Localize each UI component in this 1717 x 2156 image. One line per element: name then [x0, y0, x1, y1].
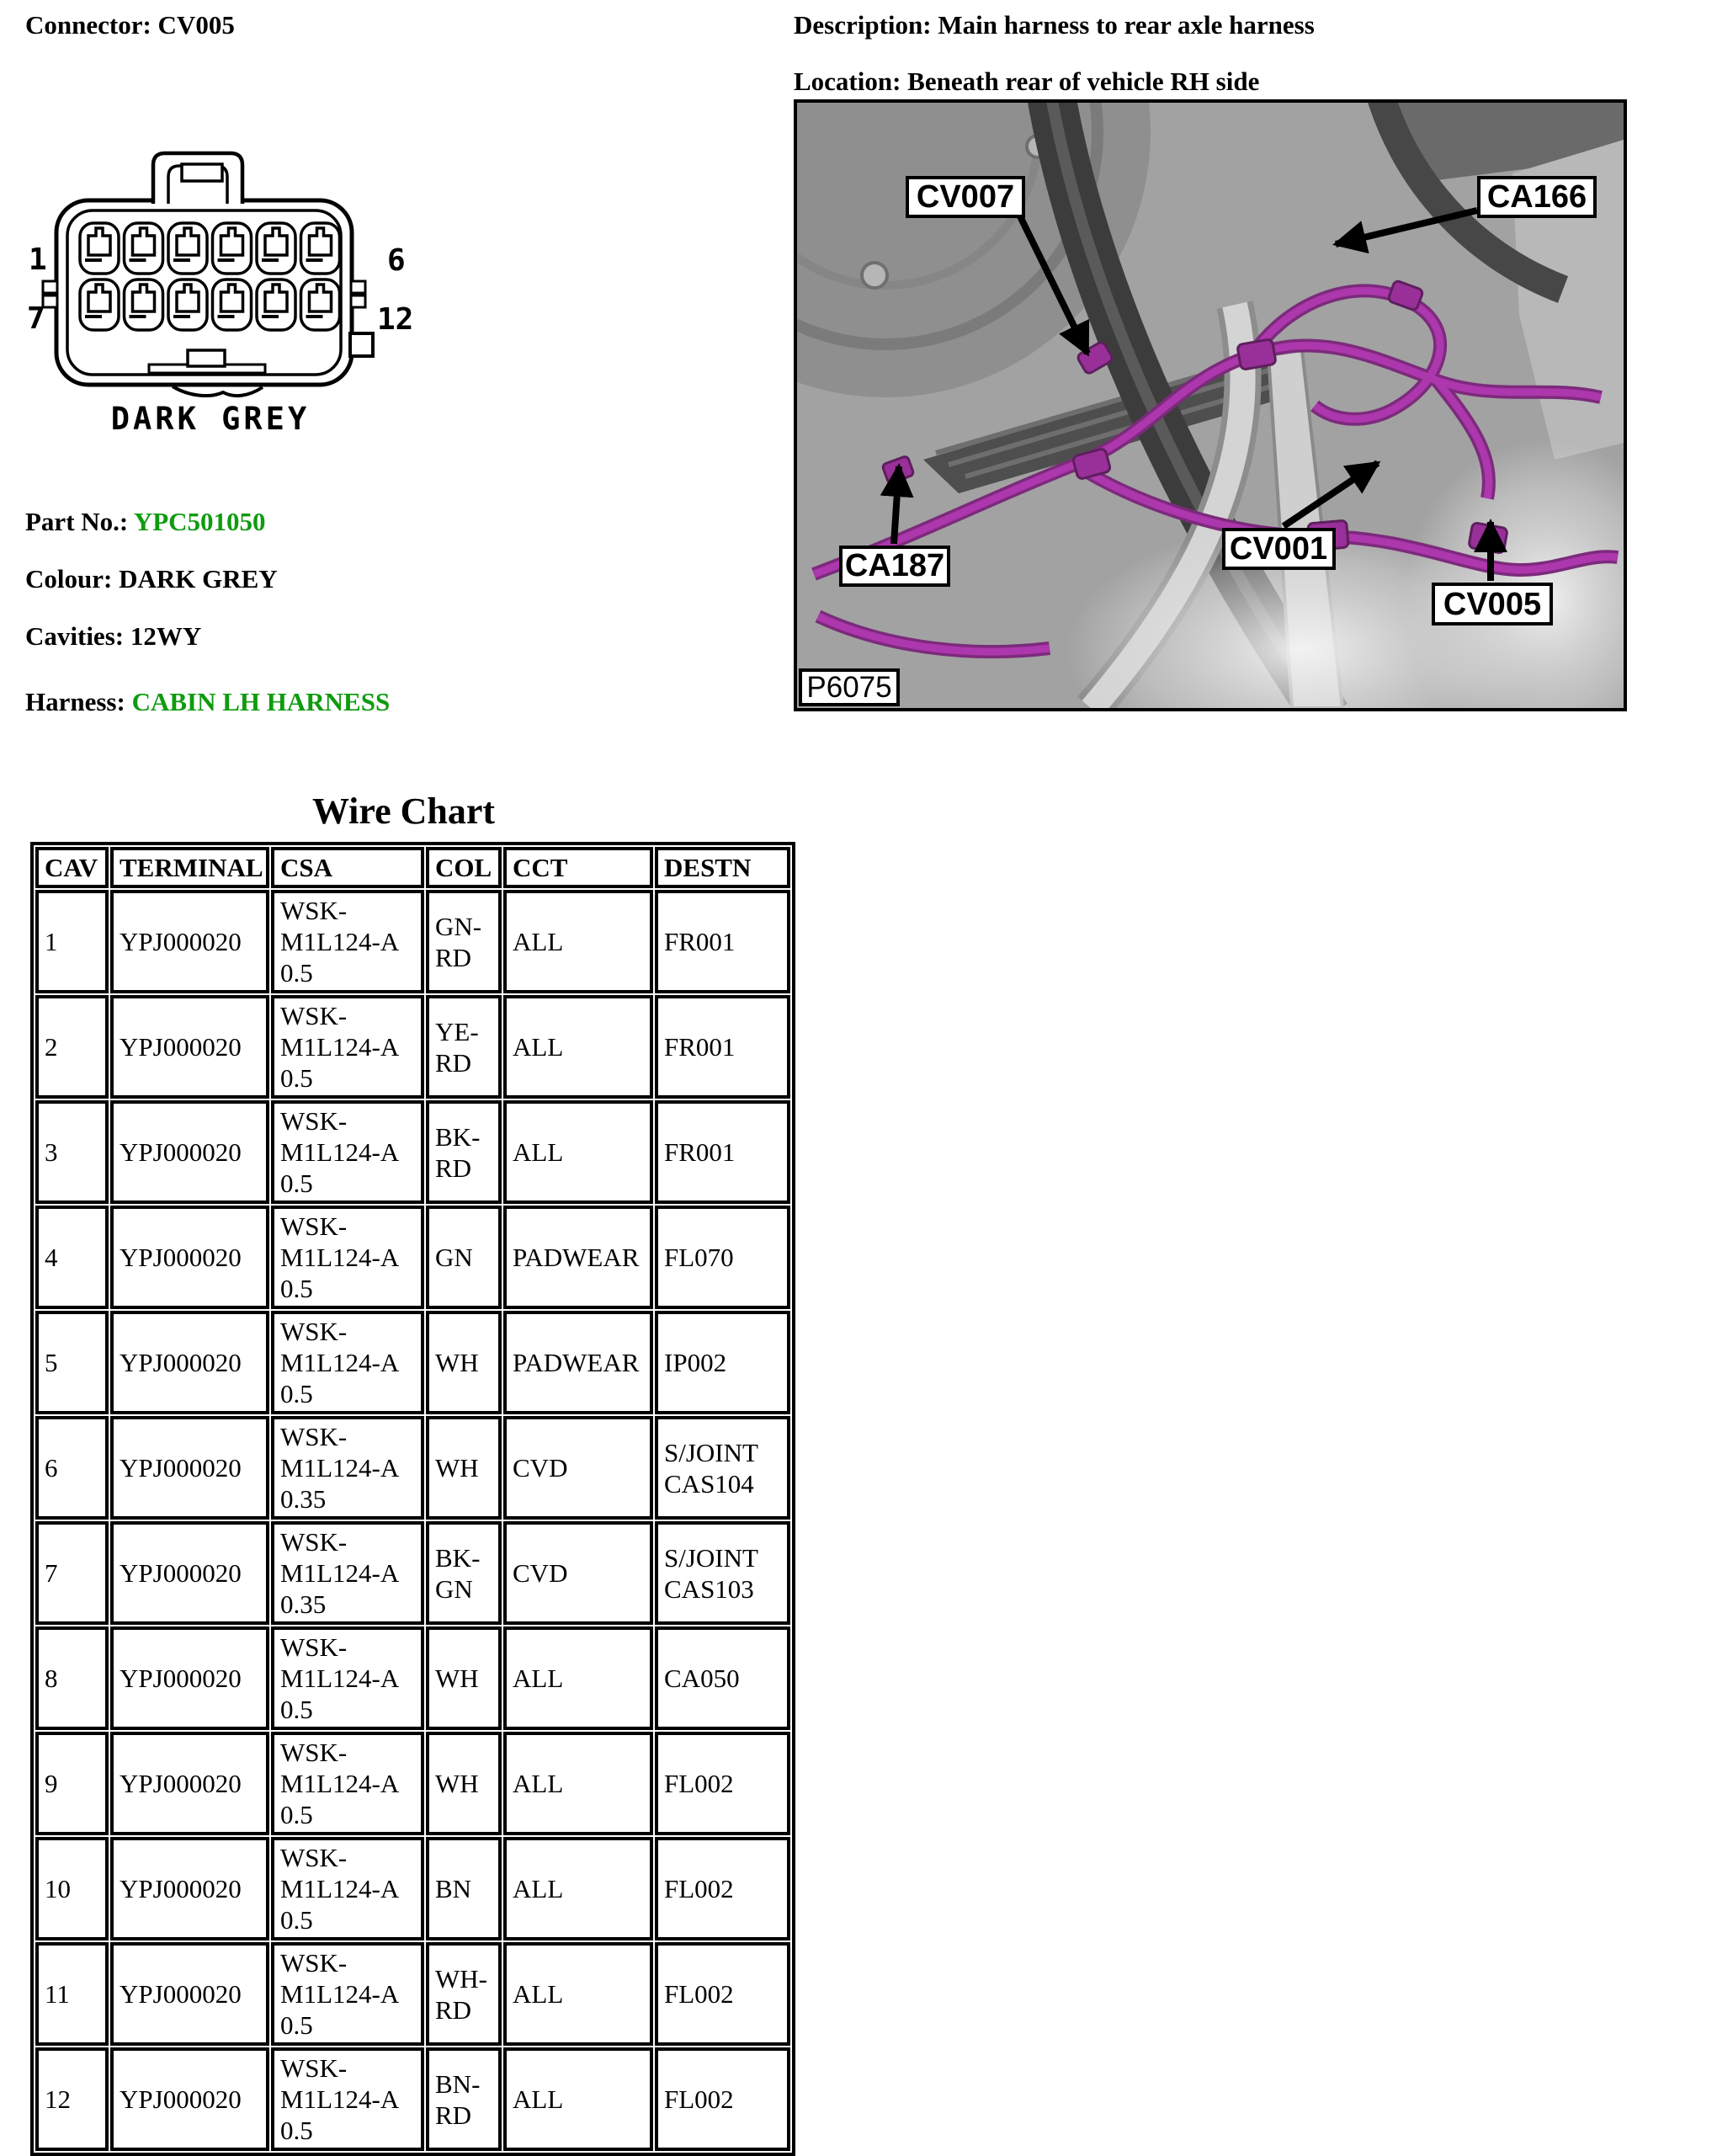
callout-label-cv001: CV001 [1230, 531, 1327, 567]
cell-csa: WSK- M1L124-A 0.5 [271, 890, 424, 993]
cell-cav: 2 [35, 995, 109, 1099]
cell-cav: 5 [35, 1311, 109, 1414]
table-row: 12 YPJ000020 WSK- M1L124-A 0.5 BN- RD AL… [35, 2047, 790, 2151]
cell-cct: ALL [503, 1100, 653, 1204]
table-row: 5 YPJ000020 WSK- M1L124-A 0.5 WH PADWEAR… [35, 1311, 790, 1414]
cell-csa: WSK- M1L124-A 0.5 [271, 1732, 424, 1835]
cell-cct: ALL [503, 1942, 653, 2046]
cell-cct: CVD [503, 1521, 653, 1625]
cell-col: BK- GN [426, 1521, 502, 1625]
table-row: 6 YPJ000020 WSK- M1L124-A 0.35 WH CVD S/… [35, 1416, 790, 1520]
cell-terminal: YPJ000020 [110, 1626, 269, 1730]
cell-destn: CA050 [655, 1626, 790, 1730]
cell-destn: FL002 [655, 1837, 790, 1940]
cell-csa: WSK- M1L124-A 0.35 [271, 1521, 424, 1625]
cell-col: WH [426, 1626, 502, 1730]
cell-destn: FL002 [655, 2047, 790, 2151]
connector-colour-caption: DARK GREY [111, 401, 310, 437]
cell-csa: WSK- M1L124-A 0.5 [271, 1626, 424, 1730]
cell-cav: 9 [35, 1732, 109, 1835]
colour-value: DARK GREY [119, 564, 278, 594]
cell-terminal: YPJ000020 [110, 1732, 269, 1835]
col-header-terminal: TERMINAL [110, 847, 269, 888]
callout-label-cv005: CV005 [1443, 587, 1541, 622]
table-row: 11 YPJ000020 WSK- M1L124-A 0.5 WH- RD AL… [35, 1942, 790, 2046]
cell-terminal: YPJ000020 [110, 1206, 269, 1309]
bottom-wave [173, 386, 263, 396]
callout-label-ca187: CA187 [845, 548, 944, 583]
cell-col: BK- RD [426, 1100, 502, 1204]
cell-cav: 7 [35, 1521, 109, 1625]
cell-destn: S/JOINT CAS103 [655, 1521, 790, 1625]
col-header-col: COL [426, 847, 502, 888]
callout-label-cv007: CV007 [917, 179, 1014, 215]
cell-cav: 3 [35, 1100, 109, 1204]
connector-diagram-drawing: 1 7 6 12 DARK GREY [17, 143, 454, 446]
cell-terminal: YPJ000020 [110, 1100, 269, 1204]
callout-ca187: CA187 [841, 547, 949, 585]
table-row: 8 YPJ000020 WSK- M1L124-A 0.5 WH ALL CA0… [35, 1626, 790, 1730]
col-header-destn: DESTN [655, 847, 790, 888]
cell-cav: 8 [35, 1626, 109, 1730]
harness-value: CABIN LH HARNESS [132, 687, 391, 716]
connector-heading: Connector: CV005 [25, 10, 235, 40]
pin-label-6: 6 [387, 243, 406, 278]
cell-col: GN [426, 1206, 502, 1309]
cell-col: WH [426, 1311, 502, 1414]
pin-label-7: 7 [27, 301, 45, 336]
table-row: 3 YPJ000020 WSK- M1L124-A 0.5 BK- RD ALL… [35, 1100, 790, 1204]
callout-cv005: CV005 [1433, 584, 1551, 624]
left-tab-upper [43, 281, 57, 293]
description-heading: Description: Main harness to rear axle h… [794, 10, 1315, 40]
cell-destn: FR001 [655, 1100, 790, 1204]
cell-cct: ALL [503, 995, 653, 1099]
connector-diagram: 1 7 6 12 DARK GREY [17, 143, 454, 446]
photo-code-label: P6075 [806, 671, 891, 704]
col-header-cct: CCT [503, 847, 653, 888]
photo-code: P6075 [800, 670, 898, 705]
cell-cct: ALL [503, 1837, 653, 1940]
latch-slot [182, 164, 222, 181]
colour-label: Colour: [25, 564, 112, 594]
cell-cct: CVD [503, 1416, 653, 1520]
table-header-row: CAV TERMINAL CSA COL CCT DESTN [35, 847, 790, 888]
wire-chart-title: Wire Chart [30, 790, 777, 833]
cell-cav: 10 [35, 1837, 109, 1940]
cell-cct: ALL [503, 890, 653, 993]
cell-cav: 4 [35, 1206, 109, 1309]
cell-csa: WSK- M1L124-A 0.5 [271, 1837, 424, 1940]
cell-destn: FL070 [655, 1206, 790, 1309]
wire-chart-table: CAV TERMINAL CSA COL CCT DESTN 1 YPJ0000… [30, 842, 795, 2156]
cell-col: BN- RD [426, 2047, 502, 2151]
table-row: 2 YPJ000020 WSK- M1L124-A 0.5 YE- RD ALL… [35, 995, 790, 1099]
cell-terminal: YPJ000020 [110, 2047, 269, 2151]
cell-cct: PADWEAR [503, 1206, 653, 1309]
cell-cct: ALL [503, 1732, 653, 1835]
cell-col: YE- RD [426, 995, 502, 1099]
right-tab-upper [351, 281, 365, 293]
part-no-label: Part No.: [25, 507, 128, 536]
cell-col: WH [426, 1732, 502, 1835]
cell-csa: WSK- M1L124-A 0.5 [271, 995, 424, 1099]
cell-col: GN- RD [426, 890, 502, 993]
cell-destn: FL002 [655, 1942, 790, 2046]
cell-cav: 6 [35, 1416, 109, 1520]
cell-col: BN [426, 1837, 502, 1940]
cell-csa: WSK- M1L124-A 0.5 [271, 2047, 424, 2151]
col-header-cav: CAV [35, 847, 109, 888]
table-row: 4 YPJ000020 WSK- M1L124-A 0.5 GN PADWEAR… [35, 1206, 790, 1309]
part-no-line: Part No.: YPC501050 [25, 507, 266, 537]
colour-line: Colour: DARK GREY [25, 564, 278, 594]
cell-cav: 12 [35, 2047, 109, 2151]
cell-cct: ALL [503, 2047, 653, 2151]
cell-destn: FR001 [655, 890, 790, 993]
cell-csa: WSK- M1L124-A 0.5 [271, 1100, 424, 1204]
cell-csa: WSK- M1L124-A 0.5 [271, 1942, 424, 2046]
cell-cct: PADWEAR [503, 1311, 653, 1414]
cell-col: WH- RD [426, 1942, 502, 2046]
table-row: 10 YPJ000020 WSK- M1L124-A 0.5 BN ALL FL… [35, 1837, 790, 1940]
cell-terminal: YPJ000020 [110, 1311, 269, 1414]
pin-label-1: 1 [29, 242, 47, 277]
cavities-label: Cavities: [25, 621, 124, 651]
col-header-csa: CSA [271, 847, 424, 888]
cell-terminal: YPJ000020 [110, 1521, 269, 1625]
pin-label-12: 12 [377, 302, 413, 337]
callout-cv001: CV001 [1224, 530, 1334, 568]
cell-destn: S/JOINT CAS104 [655, 1416, 790, 1520]
cell-terminal: YPJ000020 [110, 1416, 269, 1520]
bottom-key [188, 350, 225, 366]
cell-cav: 11 [35, 1942, 109, 2046]
table-row: 1 YPJ000020 WSK- M1L124-A 0.5 GN- RD ALL… [35, 890, 790, 993]
table-row: 7 YPJ000020 WSK- M1L124-A 0.35 BK- GN CV… [35, 1521, 790, 1625]
cell-cct: ALL [503, 1626, 653, 1730]
location-photo-rendering: CV007 CA166 CA187 CV001 CV005 P6075 [797, 103, 1624, 708]
callout-ca166: CA166 [1479, 178, 1595, 216]
cell-destn: FR001 [655, 995, 790, 1099]
cell-col: WH [426, 1416, 502, 1520]
location-heading: Location: Beneath rear of vehicle RH sid… [794, 67, 1315, 97]
part-no-value: YPC501050 [134, 507, 266, 536]
right-step [350, 333, 373, 356]
cell-terminal: YPJ000020 [110, 1942, 269, 2046]
cell-cav: 1 [35, 890, 109, 993]
harness-line: Harness: CABIN LH HARNESS [25, 687, 390, 717]
cell-destn: FL002 [655, 1732, 790, 1835]
location-photo: CV007 CA166 CA187 CV001 CV005 P6075 [794, 99, 1627, 711]
cavities-line: Cavities: 12WY [25, 621, 201, 652]
photo-headings: Description: Main harness to rear axle h… [794, 10, 1315, 97]
cavities-value: 12WY [130, 621, 201, 651]
cell-csa: WSK- M1L124-A 0.5 [271, 1206, 424, 1309]
cell-csa: WSK- M1L124-A 0.35 [271, 1416, 424, 1520]
right-tab-lower [351, 295, 365, 307]
cell-csa: WSK- M1L124-A 0.5 [271, 1311, 424, 1414]
cell-destn: IP002 [655, 1311, 790, 1414]
harness-label: Harness: [25, 687, 125, 716]
cell-terminal: YPJ000020 [110, 1837, 269, 1940]
cell-terminal: YPJ000020 [110, 890, 269, 993]
callout-label-ca166: CA166 [1487, 179, 1587, 215]
table-row: 9 YPJ000020 WSK- M1L124-A 0.5 WH ALL FL0… [35, 1732, 790, 1835]
cell-terminal: YPJ000020 [110, 995, 269, 1099]
callout-cv007: CV007 [907, 178, 1023, 216]
